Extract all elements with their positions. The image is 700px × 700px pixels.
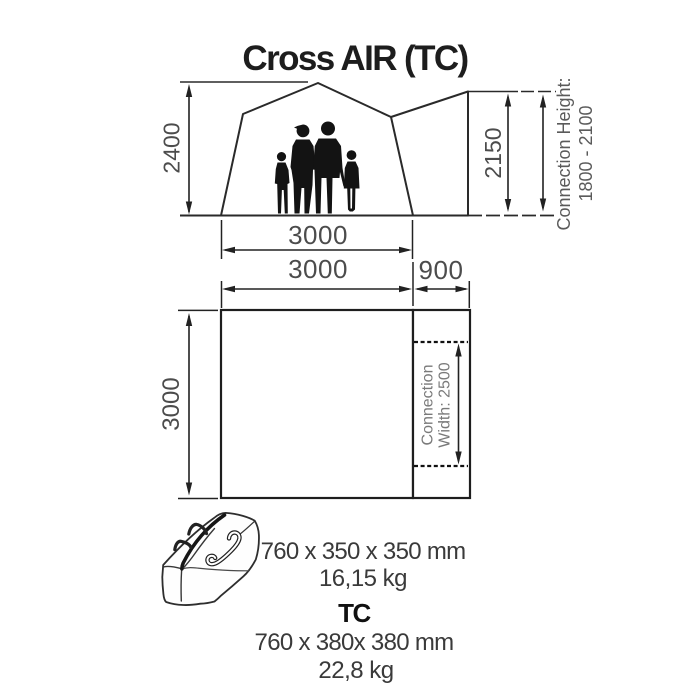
svg-text:TC: TC [338, 598, 371, 628]
svg-text:Connection: Connection [420, 365, 437, 446]
svg-text:760 x 380x 380 mm: 760 x 380x 380 mm [255, 629, 454, 656]
svg-text:2150: 2150 [480, 127, 506, 178]
svg-text:2400: 2400 [159, 122, 185, 173]
svg-text:Connection Height:: Connection Height: [554, 77, 574, 230]
svg-text:1800 - 2100: 1800 - 2100 [576, 105, 596, 201]
svg-text:Width: 2500: Width: 2500 [437, 362, 454, 447]
svg-text:22,8 kg: 22,8 kg [318, 657, 393, 684]
svg-text:Cross AIR (TC): Cross AIR (TC) [242, 39, 467, 78]
svg-text:16,15 kg: 16,15 kg [319, 565, 407, 592]
svg-text:760 x 350 x 350 mm: 760 x 350 x 350 mm [261, 538, 466, 565]
svg-text:3000: 3000 [158, 377, 185, 430]
svg-text:3000: 3000 [288, 254, 348, 284]
svg-text:3000: 3000 [288, 220, 348, 250]
svg-text:900: 900 [419, 255, 464, 285]
